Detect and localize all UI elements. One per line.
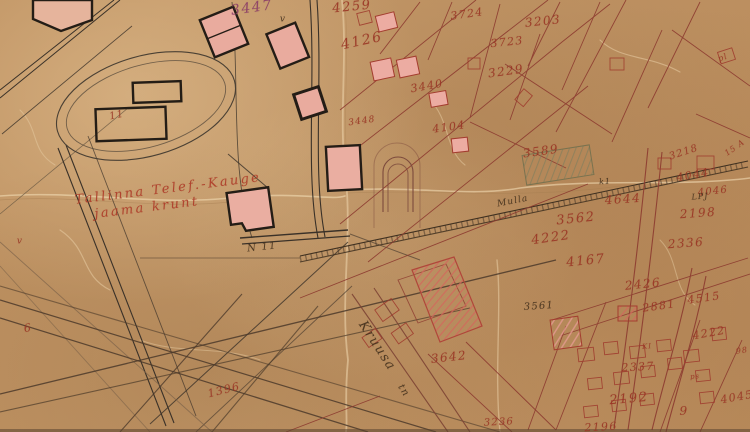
parcel-number: 6 — [23, 322, 33, 334]
parcel-number: 3589 — [522, 143, 560, 160]
building-number: N 11 — [247, 241, 277, 254]
parcel-number: 4126 — [340, 30, 384, 53]
map-canvas: 3447425937243203412637233229344034484104… — [0, 0, 750, 432]
plot-mark: ps — [690, 373, 700, 381]
plot-mark: k1 — [599, 178, 611, 187]
plot-mark: 98 — [735, 346, 748, 356]
parcel-number: 3724 — [450, 6, 484, 22]
parcel-number: 3236 — [484, 417, 515, 429]
plot-mark: pl — [717, 53, 729, 64]
parcel-number: 3218 — [668, 144, 700, 163]
parcel-number: 3447 — [230, 0, 274, 18]
map-viewport: 3447425937243203412637233229344034484104… — [0, 0, 750, 432]
parcel-number: 4222 — [531, 229, 572, 247]
parcel-number: 3448 — [348, 116, 376, 129]
parcel-number: 2198 — [679, 206, 716, 221]
parcel-number: 3642 — [430, 349, 467, 365]
street-label-kruusa-suffix: tn — [395, 383, 410, 399]
parcel-number: 4045 — [720, 389, 750, 406]
plot-mark: 15 A — [724, 138, 747, 157]
check-mark: v — [17, 238, 23, 247]
parcel-number: 2426 — [624, 276, 661, 292]
street-label-mulla: Mulla — [497, 195, 530, 210]
map-labels-layer: 3447425937243203412637233229344034484104… — [0, 0, 750, 432]
parcel-number: 4167 — [566, 252, 606, 269]
parcel-number: 3562 — [556, 210, 596, 227]
parcel-number: 4044 — [676, 167, 711, 184]
parcel-number: 2192 — [609, 391, 649, 407]
parcel-number: 4104 — [432, 119, 466, 135]
parcel-number: 3723 — [490, 35, 524, 49]
parcel-number: 3203 — [524, 13, 561, 29]
parcel-number: 4515 — [687, 290, 721, 306]
parcel-number: 9 — [679, 405, 688, 417]
plot-mark: LPJ — [691, 192, 708, 201]
parcel-number: 2881 — [642, 298, 676, 314]
check-mark: v — [280, 16, 286, 25]
parcel-number: 4644 — [604, 192, 641, 207]
parcel-number: 1396 — [207, 381, 242, 400]
parcel-number: 2196 — [584, 421, 618, 432]
street-label-kruusa: Kruusa — [356, 319, 398, 373]
parcel-number: 4259 — [332, 0, 372, 16]
building-number: 11 — [109, 110, 126, 123]
parcel-number: 4222 — [692, 325, 727, 342]
parcel-number: 2336 — [667, 236, 704, 251]
parcel-number: 3561 — [524, 301, 555, 313]
parcel-number: 3440 — [410, 78, 445, 95]
parcel-number: 2337 — [621, 361, 655, 374]
plot-mark: KI — [642, 343, 652, 351]
parcel-number: 3229 — [487, 63, 525, 80]
